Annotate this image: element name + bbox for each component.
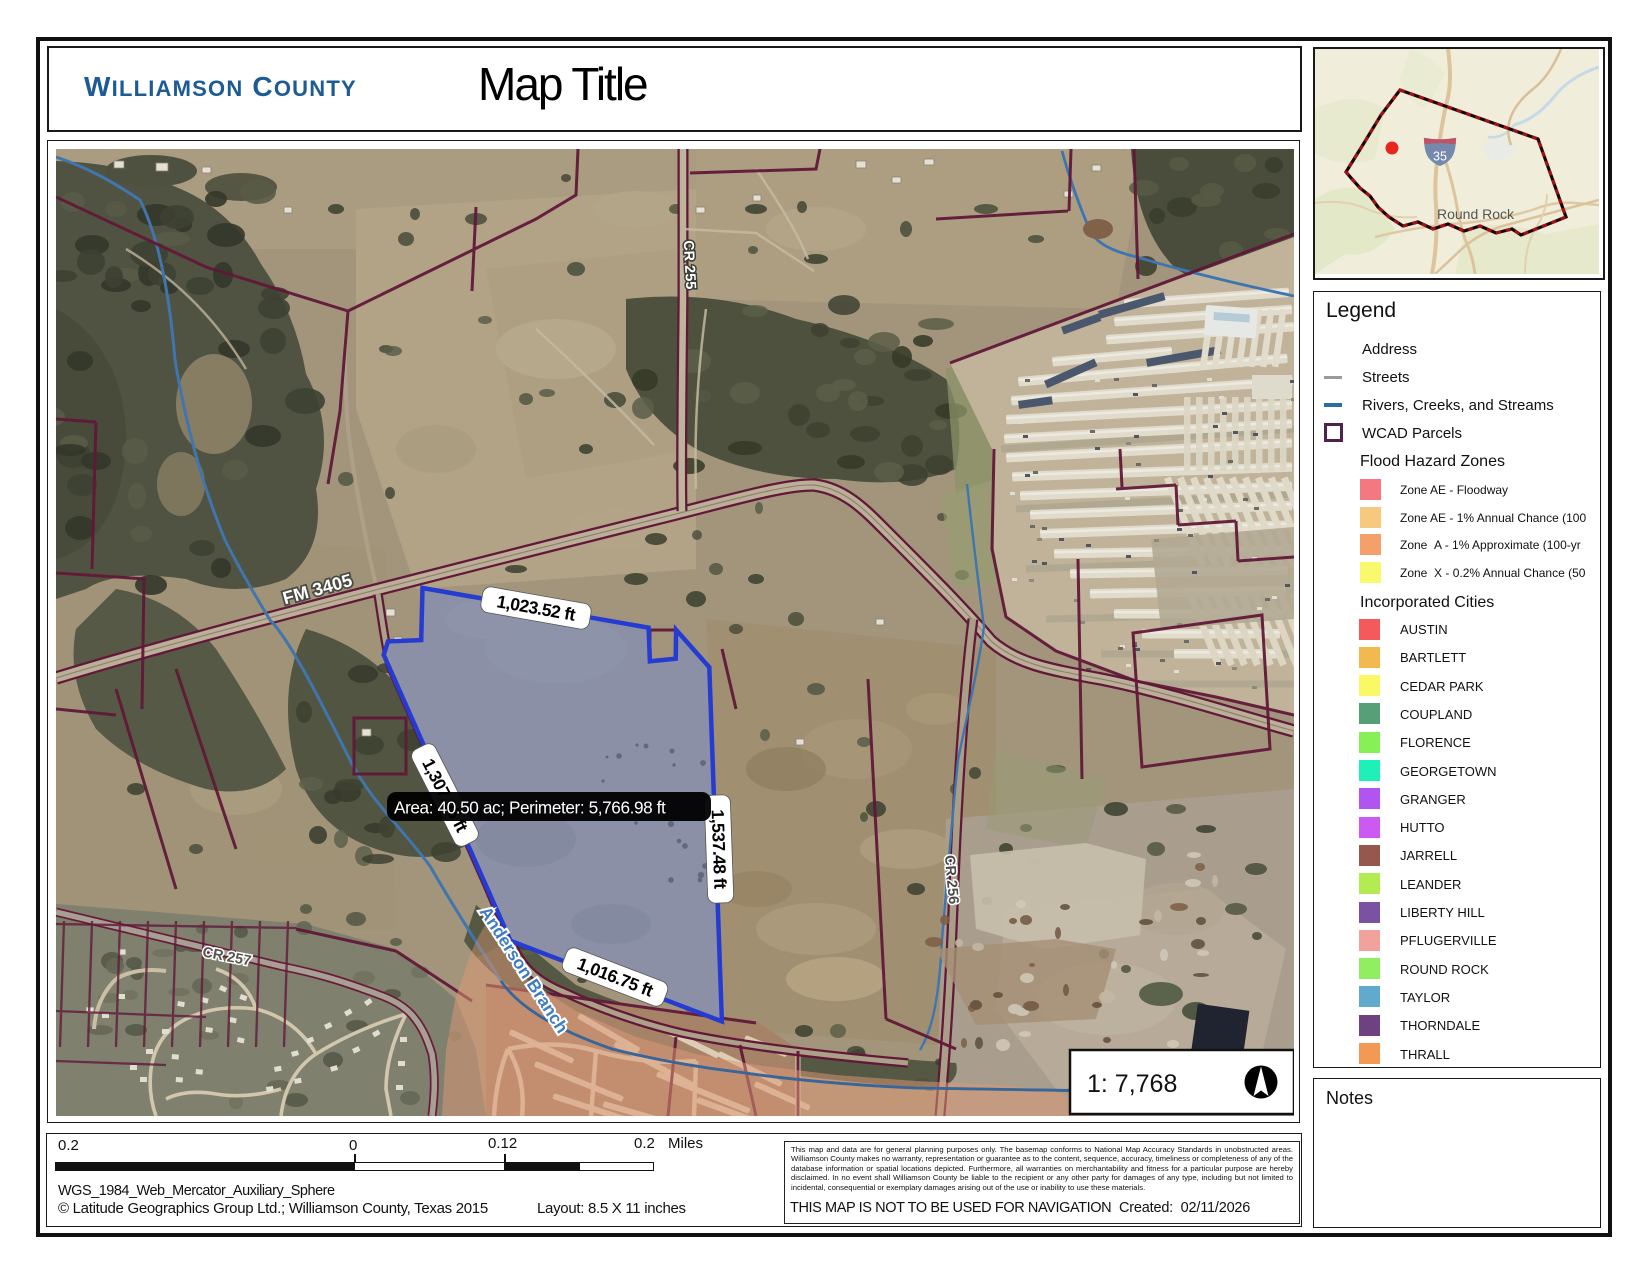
svg-text:CR 255: CR 255 xyxy=(680,240,699,290)
svg-text:Round Rock: Round Rock xyxy=(1437,206,1515,222)
svg-text:1,537.48 ft: 1,537.48 ft xyxy=(708,809,731,889)
svg-text:35: 35 xyxy=(1433,150,1447,164)
svg-text:1: 7,768: 1: 7,768 xyxy=(1087,1070,1177,1098)
svg-text:Area: 40.50 ac; Perimeter: 5,7: Area: 40.50 ac; Perimeter: 5,766.98 ft xyxy=(394,798,666,818)
